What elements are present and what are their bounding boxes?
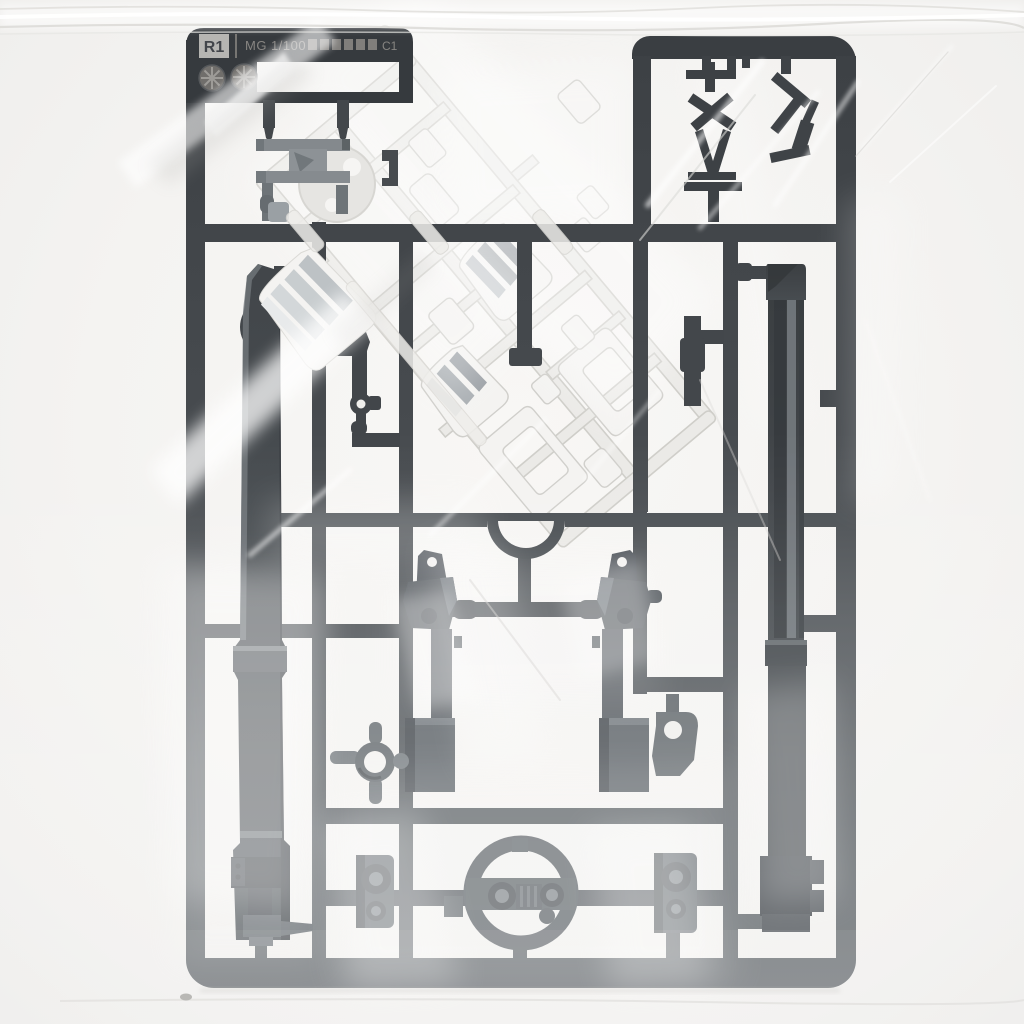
svg-text:R1: R1 [204,39,225,56]
svg-text:C1: C1 [382,39,398,53]
